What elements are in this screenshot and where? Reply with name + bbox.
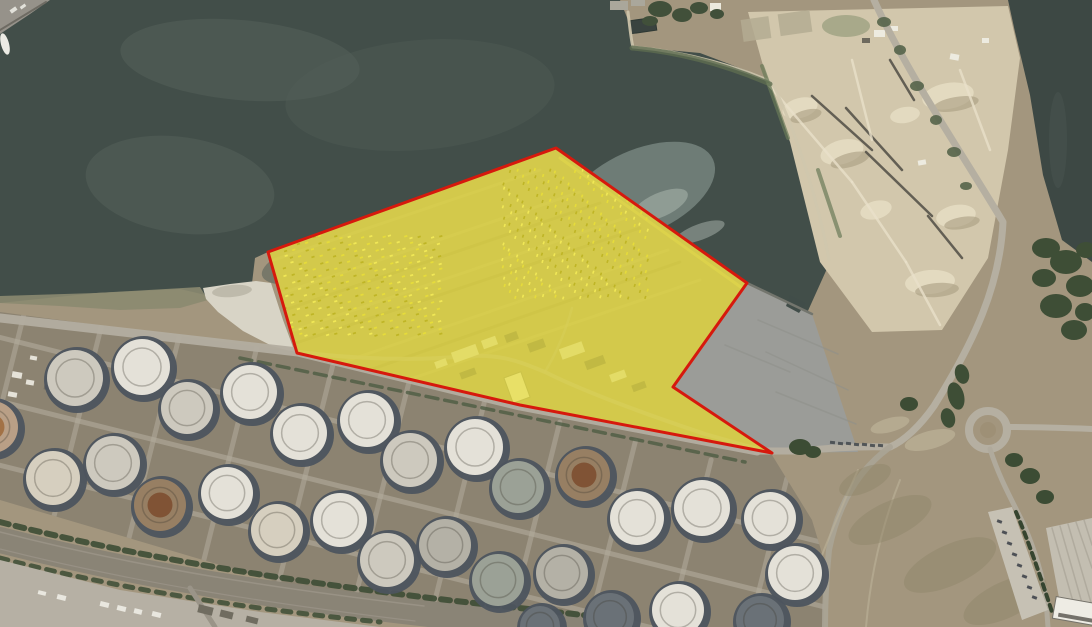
scrub-patches (778, 10, 813, 36)
right-edge-forest (1032, 269, 1056, 287)
river-wave-streak (1049, 92, 1067, 188)
roundabout-bushes (1020, 468, 1040, 484)
right-edge-forest (1040, 294, 1072, 318)
parked-cars-row (878, 444, 883, 447)
quarry-dark-hut (862, 38, 870, 43)
top-edge-trees (710, 9, 724, 19)
roadside-trees (877, 17, 891, 27)
right-edge-forest (1061, 320, 1087, 340)
top-edge-trees (672, 8, 692, 22)
parked-cars-row (870, 444, 875, 447)
roadside-green-patch (822, 15, 870, 37)
parked-cars-row (846, 442, 851, 445)
quarry-huts (982, 38, 989, 43)
top-edge-trees (648, 1, 672, 17)
parked-cars-row (854, 443, 859, 446)
roadside-trees (947, 147, 961, 157)
satellite-image (0, 0, 1092, 627)
tank-rust-patch (572, 463, 597, 488)
top-edge-trees (642, 16, 658, 26)
top-edge-structures (610, 1, 628, 10)
roadside-trees (894, 45, 906, 55)
roadside-trees (910, 81, 924, 91)
roundabout-island (980, 422, 996, 438)
junction-trees (805, 446, 821, 458)
roadside-trees (930, 115, 942, 125)
quarry-huts (874, 30, 885, 37)
parked-cars-row (838, 442, 843, 445)
parked-cars-row (862, 443, 867, 446)
junction-trees (900, 397, 918, 411)
tank-rust-patch (148, 493, 173, 518)
top-edge-structures (631, 0, 645, 6)
parked-cars-row (830, 441, 835, 444)
roundabout-bushes (1005, 453, 1023, 467)
roundabout-east-exit (1006, 427, 1092, 429)
roundabout-bushes (1036, 490, 1054, 504)
roadside-trees (960, 182, 972, 190)
top-edge-trees (690, 2, 708, 14)
scrub-patches (741, 16, 772, 42)
aerial-map-view (0, 0, 1092, 627)
